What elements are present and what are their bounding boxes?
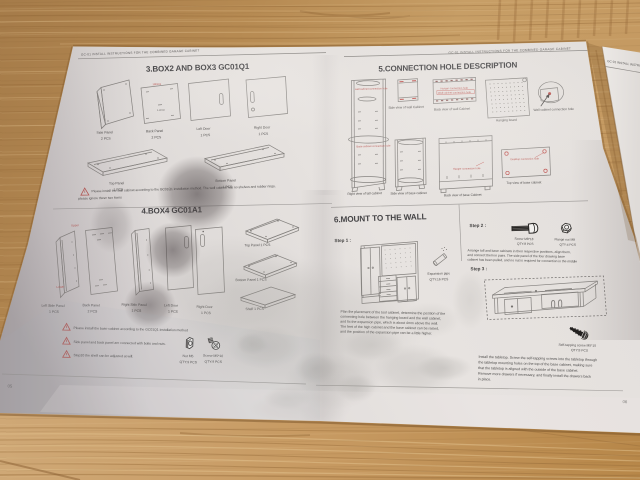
svg-text:Expansion pipe: Expansion pipe [427,271,450,275]
svg-text:Screw M8*18: Screw M8*18 [514,237,533,241]
svg-text:in place.: in place. [478,377,491,381]
svg-text:QTY:16 PCS: QTY:16 PCS [429,277,449,281]
svg-text:QTY:8 PCS: QTY:8 PCS [571,348,589,352]
svg-text:2 PCS: 2 PCS [151,135,162,139]
svg-text:Step 2 :: Step 2 : [469,223,486,228]
svg-text:QTY:8 PCS: QTY:8 PCS [517,242,534,246]
